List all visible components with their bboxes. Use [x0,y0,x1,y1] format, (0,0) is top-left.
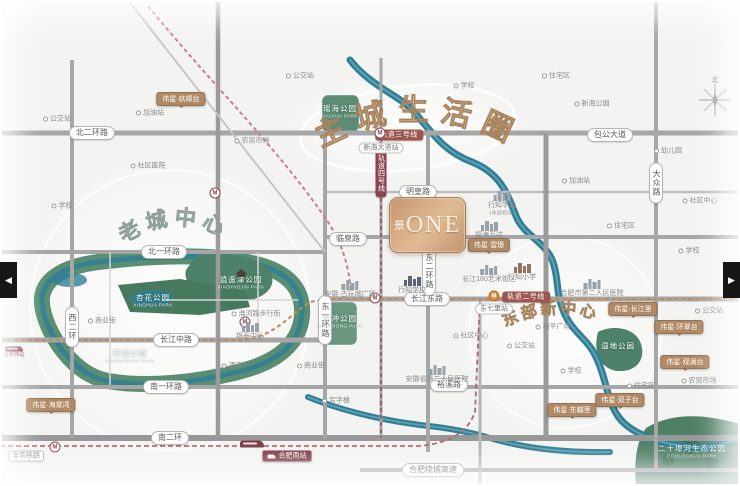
poi-label: 农贸市场 [682,378,717,385]
poi-text: 公交站 [702,308,723,315]
poi-dot-icon [682,379,687,384]
park-name: 环城公园 [113,349,147,358]
poi-text: 长江180艺术街区 [462,276,516,283]
metro-station-icon: M [50,442,61,453]
poi-label: 学校 [679,248,700,255]
road-label: 合肥绕城高速 [402,463,464,477]
train-icon [268,454,276,458]
poi-text: 商业街 [95,318,116,325]
location-map: 主城生活圈 老城中心 东部新中心 景 ONE 北 ◀ ▶ 北二环路包公大道明皇路… [0,0,740,486]
park-name: 瑶海公园 [323,104,357,113]
poi-label: 和平广场 [536,324,571,331]
poi-label: 幼儿园 [654,148,682,155]
poi-label: 公交站 [695,308,723,315]
poi-label: 公交站 [286,73,314,80]
park-label: 杏花公园XINGHUA PARK [124,293,182,309]
project-badge: 伟星·雲璟 [468,238,510,252]
poi-label: 长江180艺术街区 [462,265,516,283]
road-label: 长江中路 [153,333,199,347]
poi-text: 幼儿园 [661,148,682,155]
poi-text: 社区医院 [138,163,166,170]
poi-dot-icon [536,325,541,330]
project-badge: 伟星·海棠湾 [26,398,75,412]
poi-dot-icon [235,139,240,144]
poi-text: 学校 [59,203,73,210]
park-name-en: HUANCHENG PARK [105,359,154,364]
poi-label: 学校 [561,368,582,375]
poi-dot-icon [88,319,93,324]
poi-text: 学校 [686,248,700,255]
road-label: 淮南铁路 [8,451,44,462]
pavilion-icon [235,269,247,274]
park-name: 杏花公园 [136,293,170,302]
park-label: 湿地公园 [601,342,635,351]
poi-text: 住宅区 [614,223,635,230]
building-icon [429,365,446,375]
train-station-icon: 合肥西站 [5,346,23,351]
metro-station-icon: M [489,291,500,302]
project-badge: 伟星·双子台 [595,393,644,407]
building-icon [404,276,421,286]
south-railway-station-label: 合肥南站 [279,453,307,460]
poi-dot-icon [136,111,141,116]
poi-label: 新海公园 [575,101,610,108]
poi-text: 加油站 [143,110,164,117]
metro-station-icon: M [210,188,221,199]
park-name-en: YAOHAI PARK [322,114,357,119]
metro-station-icon: M [375,128,386,139]
carousel-prev-button[interactable]: ◀ [0,262,17,298]
poi-label: 住宅区 [627,383,655,390]
poi-dot-icon [695,309,700,314]
poi-label: 学校 [454,83,475,90]
poi-text: 学校 [568,368,582,375]
park-name-en: ECOLOGICAL PARK [667,454,717,459]
compass-icon: 北 [694,74,736,120]
metro-line-badge: 轨道四号线 [376,149,387,197]
poi-text: 住宅区 [549,73,570,80]
poi-dot-icon [322,399,327,404]
road-label: 大众路 [649,163,663,204]
poi-label: 住宅区 [607,223,635,230]
poi-dot-icon [542,74,547,79]
poi-label: 社区医院 [131,163,166,170]
poi-dot-icon [562,179,567,184]
park-name: 湿地公园 [601,342,635,351]
poi-label: 加油站 [562,178,590,185]
road-label: 包公大道 [587,128,633,142]
poi-dot-icon [683,199,688,204]
poi-label: 行知学校 [398,276,426,294]
train-station-label: 合肥西站 [4,352,25,357]
poi-label: 商业街 [88,318,116,325]
poi-label: 行知学校(本部校区) [486,191,519,217]
road-label: 南一环路 [143,380,189,394]
poi-label: 社区中心 [683,198,718,205]
building-icon [342,280,359,290]
poi-text: 行知学校 [488,202,516,209]
poi-text: 社区中心 [461,333,489,340]
poi-dot-icon [679,249,684,254]
poi-text: 公交站 [50,116,71,123]
poi-text: 公交站 [514,343,535,350]
park-label: 环城公园HUANCHENG PARK [94,349,167,365]
project-badge: 伟星·东樾里 [547,403,596,417]
poi-label: 写字楼 [322,398,350,405]
poi-dot-icon [561,369,566,374]
poi-dot-icon [232,312,237,317]
metro-line-badge: 轨道二号线 [502,292,550,303]
park-name: 二十埠河生态公园 [658,444,726,453]
poi-dot-icon [297,364,302,369]
poi-text: 福海万达 [475,232,503,239]
poi-dot-icon [607,224,612,229]
compass-north-label: 北 [712,76,719,84]
poi-text: 商业街 [304,363,325,370]
poi-dot-icon [131,164,136,169]
poi-dot-icon [627,384,632,389]
carousel-next-button[interactable]: ▶ [723,262,740,298]
poi-label: 学校 [52,203,73,210]
poi-dot-icon [286,74,291,79]
south-railway-station-badge: 合肥南站 [263,451,312,462]
project-badge: 伟星·环翠台 [654,320,703,334]
poi-label: 合肥市第二人民医院 [561,279,624,297]
poi-label: 酒店 [222,363,243,370]
poi-text: 加油站 [569,178,590,185]
poi-text: 淮河路步行街 [239,311,281,318]
building-icon [493,191,510,201]
building-icon [514,263,531,273]
park-name-en: HUACHONG PARK [317,324,363,329]
building-icon [481,221,498,231]
poi-text: 安徽·古玩城广场 [324,291,375,298]
park-label: 二十埠河生态公园ECOLOGICAL PARK [655,444,728,460]
project-badge: 伟星·观澜台 [660,355,709,369]
metro-station-label: 东七里站 [475,304,513,315]
poi-text: 银泰中心 [236,333,264,340]
poi-text: 住宅区 [634,383,655,390]
project-prefix: 景 [394,217,405,233]
poi-dot-icon [43,117,48,122]
poi-subtext: (本部校区) [490,211,515,216]
metro-station-label: 新海大道站 [359,143,404,154]
poi-text: 学校 [461,83,475,90]
park-label: 瑶海公园YAOHAI PARK [314,104,366,120]
building-icon [481,265,498,275]
poi-label: 安徽·古玩城广场 [324,280,375,298]
building-icon [584,279,601,289]
project-badge: 伟星·长江里 [608,302,657,316]
poi-label: 公交站 [43,116,71,123]
poi-dot-icon [454,334,459,339]
poi-dot-icon [454,84,459,89]
poi-label: 住宅区 [542,73,570,80]
road-label: 南二环 [151,431,189,445]
poi-label: 淮河路步行街 [232,311,281,318]
building-icon [242,322,259,332]
poi-dot-icon [52,204,57,209]
poi-dot-icon [507,344,512,349]
poi-label: 农贸市场 [235,138,270,145]
park-label: 逍遥津公园XIAOYAOJIN PARK [206,269,275,291]
road-label: 西二环 [65,307,79,348]
poi-text: 公交站 [293,73,314,80]
poi-label: 社区中心 [454,333,489,340]
road-label: 临泉路 [329,232,367,246]
road-label: 北一环路 [141,245,187,259]
poi-text: 酒店 [229,363,243,370]
poi-label: 银泰中心 [236,322,264,340]
poi-text: 行知学校 [398,287,426,294]
poi-label: 福海万达 [475,221,503,239]
poi-text: 安徽省第二人民医院 [406,376,469,383]
poi-text: 农贸市场 [689,378,717,385]
park-name-en: XIAOYAOJIN PARK [217,285,264,290]
train-station-icon [240,441,264,448]
park-name: 花冲公园 [323,314,357,323]
park-label: 花冲公园HUACHONG PARK [306,314,374,330]
poi-text: 写字楼 [329,398,350,405]
road-label: 北二环路 [69,126,115,140]
poi-label: 商业街 [297,363,325,370]
project-block: 景 ONE [389,197,466,253]
poi-text: 社区中心 [690,198,718,205]
map-graphics: 主城生活圈 老城中心 东部新中心 [0,0,740,486]
poi-text: 和平广场 [543,324,571,331]
poi-text: 合肥市第二人民医院 [561,290,624,297]
poi-dot-icon [222,364,227,369]
project-name: ONE [406,212,461,239]
poi-text: 新海公园 [582,101,610,108]
park-name-en: XINGHUA PARK [133,303,172,308]
poi-text: 农贸市场 [242,138,270,145]
poi-label: 公交站 [507,343,535,350]
poi-dot-icon [654,149,659,154]
poi-label: 加油站 [136,110,164,117]
project-badge: 伟星·玖樟台 [156,92,205,106]
poi-dot-icon [575,102,580,107]
poi-label: 安徽省第二人民医院 [406,365,469,383]
